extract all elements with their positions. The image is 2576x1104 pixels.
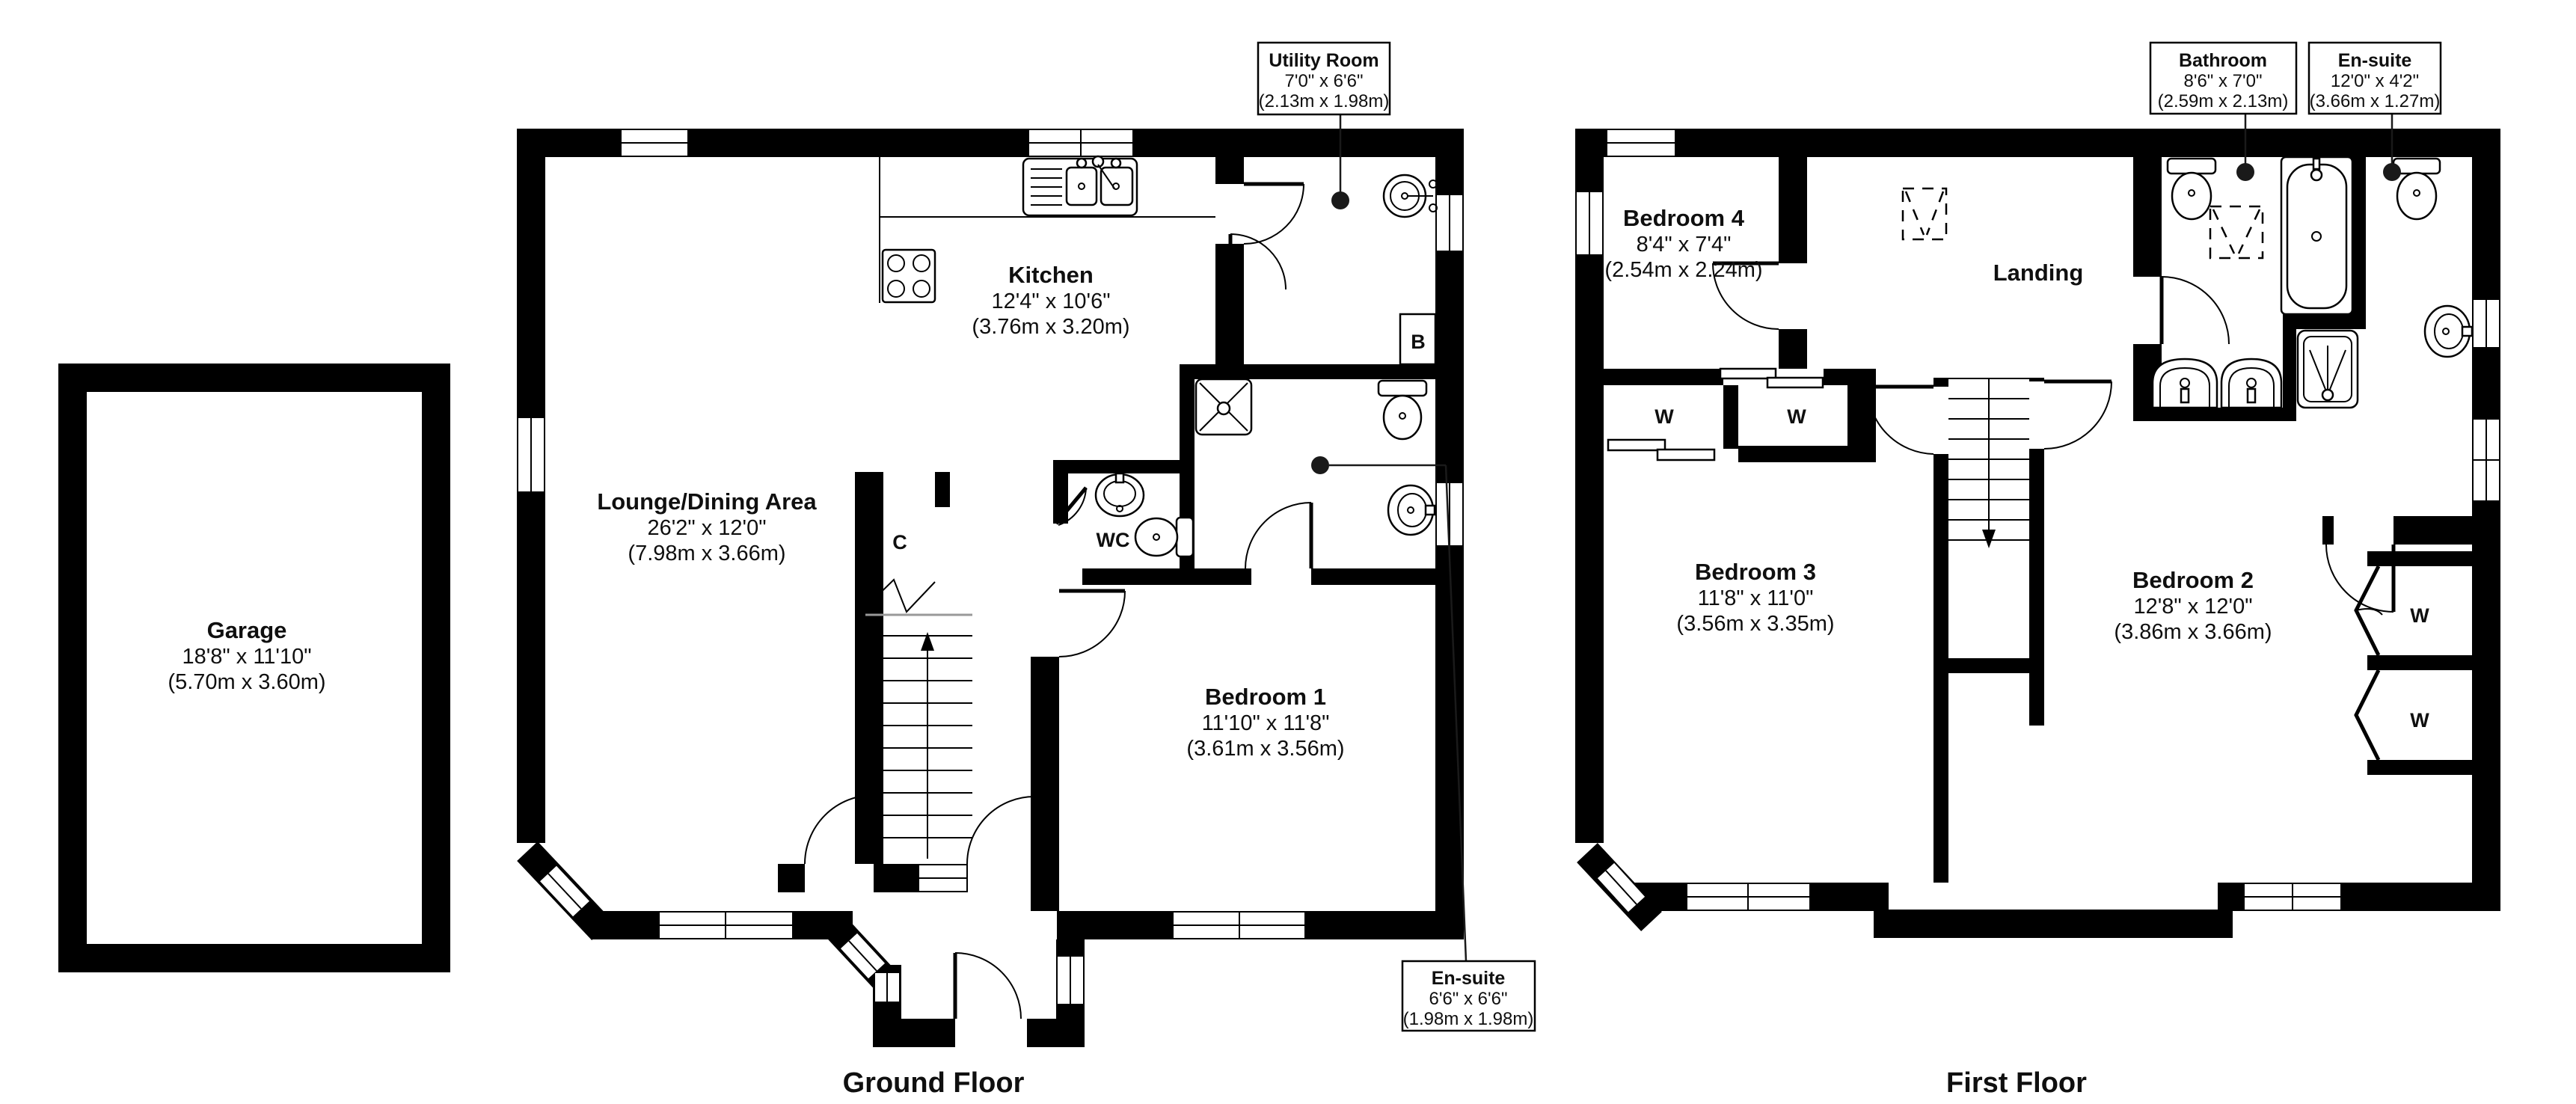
bedroom2-metric: (3.86m x 3.66m) (2114, 620, 2272, 644)
utility-sink-icon (1384, 175, 1437, 217)
bedroom3-dims: 11'8" x 11'0" (1698, 586, 1814, 610)
ensuite-g-callout-title: En-suite (1432, 968, 1506, 989)
ensuite-g-callout-dims: 6'6" x 6'6" (1429, 989, 1508, 1009)
bedroom1-metric: (3.61m x 3.56m) (1186, 737, 1344, 761)
loft-hatch-icon (1903, 188, 1946, 239)
hob-icon (883, 250, 935, 302)
bathroom-callout-metric: (2.59m x 2.13m) (2158, 91, 2289, 111)
ground-windows (518, 129, 1463, 1005)
kitchen-metric: (3.76m x 3.20m) (972, 315, 1129, 339)
garage-name: Garage (207, 617, 287, 643)
bathroom-callout-dims: 8'6" x 7'0" (2184, 71, 2263, 91)
wardrobe-label: W (2410, 604, 2429, 627)
bedroom1-name: Bedroom 1 (1205, 684, 1326, 710)
wardrobe-label: W (1787, 405, 1806, 428)
bedroom1-dims: 11'10" x 11'8" (1202, 711, 1330, 735)
wc-basin-icon (1096, 473, 1144, 516)
boiler-label: B (1411, 331, 1426, 353)
ground-walls (517, 129, 1464, 1047)
bathroom-hatch-icon (2210, 206, 2263, 258)
first-floor-plan: Bedroom 4 8'4" x 7'4" (2.54m x 2.24m) La… (1575, 43, 2500, 1099)
double-basin-icon (2153, 359, 2281, 408)
ensuite-f-callout-metric: (3.66m x 1.27m) (2310, 91, 2441, 111)
first-stairs (1948, 378, 2029, 548)
ensuite-first-toilet-icon (2393, 159, 2440, 219)
bedroom2-dims: 12'8" x 12'0" (2133, 595, 2252, 619)
utility-callout-metric: (2.13m x 1.98m) (1259, 91, 1390, 111)
wardrobe-label: W (1655, 405, 1674, 428)
wc-label: WC (1097, 529, 1130, 551)
ensuite-basin-icon (1388, 485, 1435, 535)
bathroom-toilet-icon (2168, 159, 2215, 219)
ensuite-g-callout-metric: (1.98m x 1.98m) (1403, 1009, 1534, 1029)
leader-dot-icon (1311, 456, 1329, 474)
wardrobe-label: W (2410, 709, 2429, 732)
kitchen-dims: 12'4" x 10'6" (991, 289, 1110, 313)
lounge-metric: (7.98m x 3.66m) (628, 542, 785, 565)
ensuite-first-basin-icon (2425, 306, 2472, 357)
bedroom3-metric: (3.56m x 3.35m) (1676, 612, 1834, 636)
kitchen-name: Kitchen (1008, 262, 1094, 288)
ground-floor-plan: B Garage 18'8" x 11'10" (58, 43, 1535, 1099)
utility-callout-title: Utility Room (1269, 50, 1379, 71)
bedroom2-name: Bedroom 2 (2132, 567, 2254, 593)
lounge-dims: 26'2" x 12'0" (647, 516, 766, 540)
lounge-name: Lounge/Dining Area (597, 488, 817, 515)
ground-floor-title: Ground Floor (843, 1067, 1025, 1099)
bedroom4-dims: 8'4" x 7'4" (1637, 233, 1732, 257)
garage-metric: (5.70m x 3.60m) (168, 670, 325, 694)
garage-dims: 18'8" x 11'10" (182, 645, 311, 669)
bedroom4-name: Bedroom 4 (1623, 205, 1745, 231)
ensuite-f-callout-title: En-suite (2338, 50, 2412, 71)
bath-icon (2281, 157, 2352, 314)
floorplan-canvas: B Garage 18'8" x 11'10" (0, 0, 2576, 1104)
wc-toilet-icon (1135, 518, 1193, 556)
stairs-up-arrow-icon (921, 632, 934, 651)
ensuite-f-callout-dims: 12'0" x 4'2" (2331, 71, 2419, 91)
ensuite-toilet-icon (1379, 381, 1426, 439)
ensuite-first-shower-icon (2298, 331, 2358, 408)
stairs-down-arrow-icon (1982, 530, 1996, 548)
leader-dot-icon (1331, 191, 1349, 209)
ensuite-ground-callout: En-suite 6'6" x 6'6" (1.98m x 1.98m) (1311, 456, 1535, 1031)
landing-name: Landing (1993, 260, 2084, 286)
bedroom4-metric: (2.54m x 2.24m) (1604, 258, 1762, 282)
boiler-icon: B (1400, 314, 1435, 364)
floorplan-page: B Garage 18'8" x 11'10" (0, 0, 2576, 1104)
ensuite-shower-icon (1196, 379, 1251, 435)
cupboard-label: C (892, 531, 907, 553)
first-floor-title: First Floor (1946, 1067, 2087, 1099)
leader-dot-icon (2236, 163, 2254, 181)
utility-callout-dims: 7'0" x 6'6" (1285, 71, 1364, 91)
bathroom-callout-title: Bathroom (2179, 50, 2267, 71)
leader-dot-icon (2383, 163, 2401, 181)
bedroom3-name: Bedroom 3 (1695, 559, 1816, 585)
